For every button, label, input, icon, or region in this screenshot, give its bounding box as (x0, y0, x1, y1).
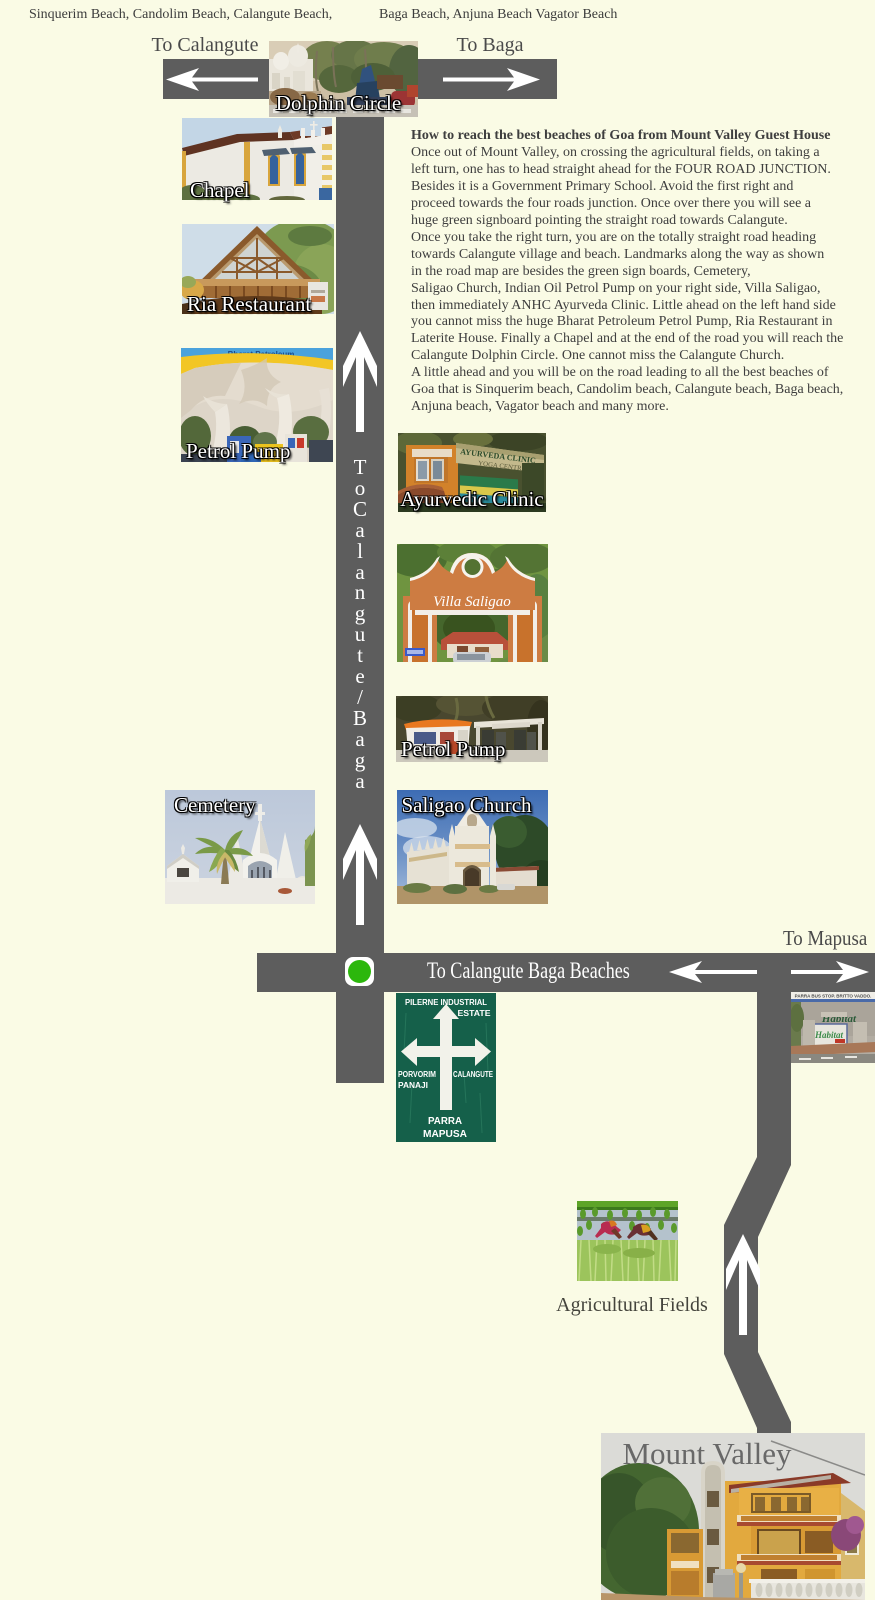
svg-text:PORVORIM: PORVORIM (398, 1069, 436, 1079)
svg-text:Villa Saligao: Villa Saligao (433, 594, 511, 610)
svg-text:CALANGUTE: CALANGUTE (453, 1069, 493, 1079)
svg-text:ESTATE: ESTATE (458, 1008, 491, 1018)
svg-text:PARRA: PARRA (428, 1115, 462, 1127)
svg-text:PARRA BUS STOP. BRITTO VADDO.: PARRA BUS STOP. BRITTO VADDO. (795, 994, 872, 999)
svg-text:MAPUSA: MAPUSA (423, 1128, 467, 1140)
svg-text:PILERNE INDUSTRIAL: PILERNE INDUSTRIAL (405, 997, 487, 1007)
svg-text:Habitat: Habitat (814, 1030, 844, 1040)
svg-text:PANAJI: PANAJI (398, 1080, 428, 1090)
